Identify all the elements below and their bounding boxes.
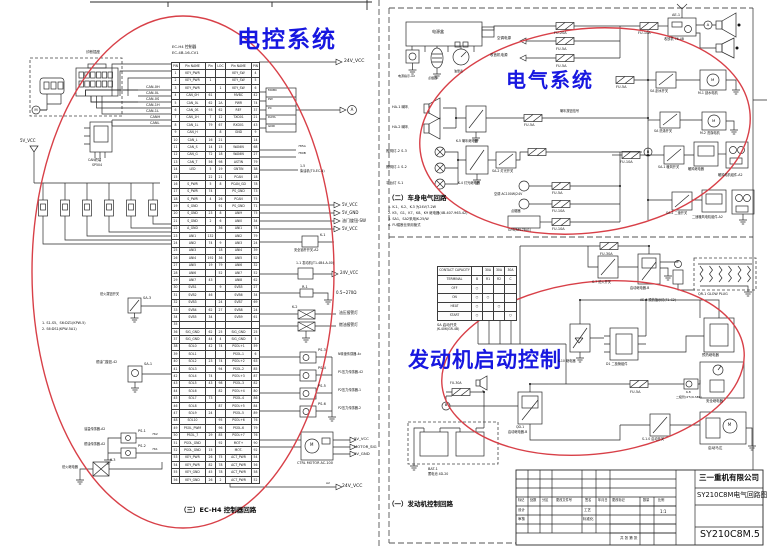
motor-desc: CTRL MOTOR AC-100 <box>297 462 333 466</box>
radio-ref: AE-1 <box>672 13 680 17</box>
lamp-switch-desc: SA-2 灯光开关 <box>492 170 513 174</box>
ac-device-desc: 空调 AC100W/24V <box>494 193 522 197</box>
node-b-label: B <box>445 403 448 407</box>
contact-table-desc-2: JK-406(GR-4B) <box>437 328 459 332</box>
tb-col-label: 标记 <box>518 499 524 503</box>
ps2-desc: 燃油传感器-A2 <box>84 443 105 447</box>
vcc24-top: 24V_VCC <box>344 59 364 64</box>
tb-col-label: 处数 <box>530 499 536 503</box>
battery-ref: BAT-1 <box>428 467 438 471</box>
contact-table-desc-1: SA 启动开关 <box>437 323 457 327</box>
heater-unit-desc: 暖风电机组件-A2 <box>718 174 742 178</box>
fuse-label: FU-10A <box>552 209 565 213</box>
can-wire-label: CANL <box>150 121 159 125</box>
tb-check: 审核 <box>518 517 525 521</box>
fuse-label: FU-10A <box>552 227 565 231</box>
feed-label: 收音机电源 <box>490 53 508 57</box>
wire-761: 761 <box>152 448 158 451</box>
conn-row: PW <box>268 98 273 101</box>
body-circuit-note: 2. K5、G1、K7、K8、K9 继电器(4B-407-963-42) <box>388 212 468 216</box>
heater2-switch-desc: SA-2 二速开关 <box>666 212 687 216</box>
engine-ref-15b: 柴油机(T0-EC-4) <box>300 170 325 174</box>
fuse-label: FU-5A <box>552 191 562 195</box>
power-box-label: 电源盒 <box>432 30 444 35</box>
tb-sheet: 共 张 第 张 <box>620 536 637 540</box>
tb-col-label: 更改文件号 <box>556 499 572 503</box>
fuse-label: FU-30A <box>600 252 613 256</box>
sensor-note-2: 2. S6:DS1(KPW-5A1) <box>42 328 77 332</box>
ps3-ref: PS-3 <box>318 348 326 352</box>
tb-col-label: 年月日 <box>598 499 608 503</box>
heading-electronic-control: 电控系统 <box>237 20 337 54</box>
power-comp-desc: 点烟器 <box>428 77 437 80</box>
battery-desc: 蓄电池 4D-20 <box>428 473 448 477</box>
start-relay-desc: 启动继电器-B <box>630 287 649 291</box>
ps1-desc: 油温传感器-A2 <box>84 428 105 432</box>
tb-qty: 数量 <box>643 499 649 503</box>
can-wire-label: CAN-0L <box>146 91 159 95</box>
fuse-label: FU-10A <box>620 160 633 164</box>
conn-row: GND <box>268 125 275 128</box>
wiring-linework <box>0 0 767 547</box>
ecu-title-2: EC-4B-16-CV1 <box>172 51 199 55</box>
schematic-page: PINPin NAMEPinLOCPin NAMEPIN1KEY_PWRKEY_… <box>0 0 767 547</box>
motor-arrow: 5V_GND <box>354 452 370 456</box>
motor-arrow: 5V_VCC <box>354 437 369 441</box>
lamp-row-label: 平台灯 S-1 <box>386 181 403 185</box>
motor-m-label: M <box>310 443 313 448</box>
wiper-motor-desc: M-1 刮水电机 <box>698 92 718 96</box>
fuse-label: FU-5A <box>524 123 534 127</box>
tb-drawing-no: SY210C8M.5 <box>700 530 760 541</box>
ps5-ref: PS-5 <box>318 384 326 388</box>
wire-762: 762 <box>152 433 158 436</box>
node-b-label: B <box>647 150 650 154</box>
k3-desc: 熄火继电器 <box>62 466 78 470</box>
conn-row: MOBC <box>268 89 277 92</box>
m-node-label: M <box>34 108 37 112</box>
motor-m-label: M <box>711 78 714 82</box>
fuse-label: FU-5A <box>630 390 640 394</box>
k8-desc: 二极管(4'5/9-SBL) <box>676 396 702 399</box>
starter-motor-desc: 启动马达 <box>708 446 722 450</box>
horn-signal-desc: 喇叭按钮信号 <box>560 110 579 114</box>
ps5-desc: P2压力传感器-1 <box>338 389 361 393</box>
fuse-label: FU-30A <box>450 382 462 386</box>
right-arrow-label: 5V_VCC <box>342 227 358 232</box>
node-a-label: A <box>707 23 710 27</box>
sensor-note-1: 1. S1-S5、S6:DZ1(KPW-5) <box>42 322 86 326</box>
fuse-label: FU-20A <box>554 31 567 35</box>
body-circuit-note: 4. FU熔断丝采用管式 <box>388 224 420 228</box>
preheat-relay-desc: 预热继电器 <box>702 354 719 358</box>
cigarette-desc: 点烟器 <box>511 210 521 214</box>
k3-ref: K-3 <box>110 458 115 462</box>
k2-lamp-2: 燃油报警灯 <box>339 323 358 327</box>
radio-desc: 收放机 76-4B <box>664 38 684 42</box>
ecu-title-1: EC-H4 控制器 <box>172 45 196 49</box>
can-wire-label: CANH <box>150 115 160 119</box>
caption-body-circuit: （二）车身电气回路 <box>388 192 447 202</box>
heater-switch-desc: SA-1 暖风开关 <box>658 166 679 170</box>
motor-m-label: M <box>712 119 715 123</box>
heading-electrical-system: 电气系统 <box>506 64 594 93</box>
lamp-relay-desc: K-4 灯光继电器 <box>458 182 480 186</box>
start-switch-desc: S-1.0 启动开关 <box>642 438 664 442</box>
tb-col-label: 分区 <box>542 499 548 503</box>
5v-rail-label: 5V_VCC <box>20 139 36 144</box>
tb-standard: 标准化 <box>583 517 594 521</box>
heading-engine-start: 发动机启动控制 <box>408 344 562 374</box>
heater-relay-desc: 暖风继电器 <box>688 168 704 172</box>
body-circuit-note: 1. K-1、K-2、K-3 为24V/7-2W <box>388 206 436 210</box>
sw1-desc: 熄火拨钮开关 <box>100 293 119 297</box>
sw2-ref: SA-1 <box>144 362 152 366</box>
k10-desc: K-10 继电器 <box>558 360 576 364</box>
ps6-ref: PS-6 <box>318 402 326 406</box>
fuse-label: FU-5A <box>616 85 626 89</box>
lamp-row-label: 照明灯-1 S-2 <box>386 165 407 169</box>
gps-desc: GPS(AM-7841) <box>508 229 531 233</box>
can-wire-label: CAN-1L <box>146 109 159 113</box>
preheat-lamp-desc: AE-7 预热指示灯(F1-C2) <box>640 299 676 303</box>
can-wire-label: CAN-1H <box>146 103 160 107</box>
ps1-ref: PS-1 <box>138 429 146 433</box>
vcc24-mid: 24V_VCC <box>340 271 358 276</box>
power-comp-desc: 油量表 <box>454 70 463 73</box>
k1-desc: 安全锁杆开关-A2 <box>294 249 318 253</box>
conn-row: DATA <box>268 116 276 119</box>
ps3-desc: N转速传感器-4c <box>338 353 361 357</box>
body-circuit-note: 3. SA1、SA2采用JK-25/W <box>388 218 429 222</box>
tb-ratio: 比例 <box>658 499 664 503</box>
washer-motor-desc: M-2 洗涤电机 <box>700 132 720 136</box>
power-comp-desc: 电源指示-A2 <box>398 75 415 78</box>
washer-switch-desc: SA 洗涤开关 <box>654 130 672 134</box>
fuse-label: FU-5A <box>556 64 566 68</box>
sw2-desc: 燃油门旋钮-42 <box>96 361 117 365</box>
glow-plug-desc: QR-1 GLOW PLUG <box>698 293 728 297</box>
conn-row: PC <box>268 107 272 110</box>
k2-lamp-1: 油压报警灯 <box>339 311 358 315</box>
contact-capacity-table: CONTACT CAPACITY30A30A30ATERMINALBR1R2CO… <box>437 266 517 321</box>
ps4-ref: PS-4 <box>318 366 326 370</box>
tb-craft: 工艺 <box>584 508 591 512</box>
can-wire-label: CAN-0H <box>146 85 160 89</box>
kill-switch-desc: S-7 熄火开关 <box>592 281 611 285</box>
wiper-switch-desc: SA 刮水开关 <box>650 90 668 94</box>
qd1-desc: 启动继电器-B <box>508 431 527 435</box>
heater2-unit-desc: 二速暖风电机组件-A2 <box>692 216 723 220</box>
horn-label: HA-1 喇叭 <box>392 105 409 109</box>
fuse-label: FU-5A <box>556 47 566 51</box>
ps4-desc: P1压力传感器-42 <box>338 371 363 375</box>
tb-col-label: 签名 <box>585 499 591 503</box>
wire-780b: 780B <box>298 152 306 155</box>
ecu-pin-table: PINPin NAMEPinLOCPin NAMEPIN1KEY_PWRKEY_… <box>171 62 260 484</box>
k8-ref: K-8 <box>686 391 691 394</box>
ic-label-2: SP504 <box>92 164 102 168</box>
r1-desc: 0.5~270Ω <box>336 291 356 296</box>
node-a-label: A <box>351 108 354 113</box>
ps6-desc: P2压力传感器-2 <box>338 407 361 411</box>
tb-mark: 更改标记 <box>612 499 625 503</box>
safety-relay-desc: 安全继电器 <box>706 400 723 404</box>
diag-connector-label: 诊断插座 <box>86 50 100 54</box>
feed-label: 空调电源 <box>497 36 511 40</box>
caption-engine-circuit: （一）发动机控制回路 <box>388 498 453 508</box>
horn-label: HA-2 喇叭 <box>392 125 409 129</box>
sw1-ref: SA-3 <box>143 296 151 300</box>
wire-785a: 785A <box>298 145 306 148</box>
lamp-row-label: 照明灯-2 S-3 <box>386 149 407 153</box>
tb-design: 设计 <box>518 508 525 512</box>
right-arrow-label: 5V_GND <box>342 211 358 216</box>
tb-scale: 1:1 <box>660 510 666 515</box>
k1-ref: K-1 <box>320 233 325 237</box>
engine-ref-11: 1-1 发动机(T1-4B4-A-00) <box>296 262 334 266</box>
right-arrow-label: 油门旋钮-SW <box>342 219 366 224</box>
caption-controller-circuit: （三）EC-H4 控制器回路 <box>180 504 256 514</box>
right-arrow-label: 5V_VCC <box>342 203 358 208</box>
horn-relay-desc: K-5 喇叭继电器 <box>456 140 478 144</box>
fuse-label: FU-10A <box>638 31 651 35</box>
motor-arrow: MOTOR_SIG <box>354 445 377 449</box>
vcc24-bottom: 24V_VCC <box>342 484 362 489</box>
k2-ref: K-2 <box>292 305 297 309</box>
r1-ref: R-1 <box>302 285 308 289</box>
ps2-ref: PS-2 <box>138 444 146 448</box>
tb-drawing-title: SY210C8M电气回路图 <box>697 492 767 500</box>
diode-block-desc: D1 二极管组件 <box>606 363 627 367</box>
can-wire-label: CAN-0S <box>146 97 159 101</box>
motor-m-label: M <box>728 423 731 428</box>
tb-company: 三一重机有限公司 <box>699 474 759 483</box>
wire-a2: A2 <box>326 482 330 485</box>
highlight-ellipses <box>32 10 762 528</box>
